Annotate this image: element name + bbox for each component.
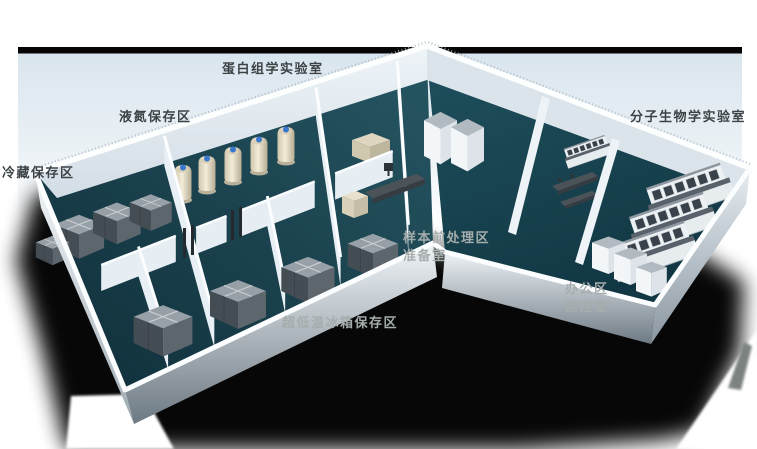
label-ult-freezer-text: 超低温冰箱保存区 [282,315,398,330]
label-molecular-biology-lab: 分子生物学实验室 [630,110,746,123]
top-stripe [18,47,742,54]
label-liquid-nitrogen-text: 液氮保存区 [119,109,192,124]
label-liquid-nitrogen-storage: 液氮保存区 [119,110,192,123]
label-sample-pretreatment-text: 样本前处理区 [403,230,490,245]
label-preparation-room-text: 准备室 [403,248,447,263]
label-monitoring-room-text: 监控室 [565,299,609,314]
label-office-area-text: 办公区 [565,281,609,296]
label-cold-storage: 冷藏保存区 [2,166,75,179]
label-preparation-room: 准备室 [403,249,447,262]
label-proteomics-lab: 蛋白组学实验室 [222,62,324,75]
label-cold-storage-text: 冷藏保存区 [2,165,75,180]
label-proteomics-lab-text: 蛋白组学实验室 [222,61,324,76]
label-ult-freezer-storage: 超低温冰箱保存区 [282,316,398,329]
floorplan-stage: 蛋白组学实验室 液氮保存区 冷藏保存区 分子生物学实验室 样本前处理区 准备室 … [0,0,757,449]
label-office-area: 办公区 [565,282,609,295]
label-monitoring-room: 监控室 [565,300,609,313]
floorplan-svg [0,0,757,449]
label-sample-pretreatment-area: 样本前处理区 [403,231,490,244]
label-molecular-biology-text: 分子生物学实验室 [630,109,746,124]
